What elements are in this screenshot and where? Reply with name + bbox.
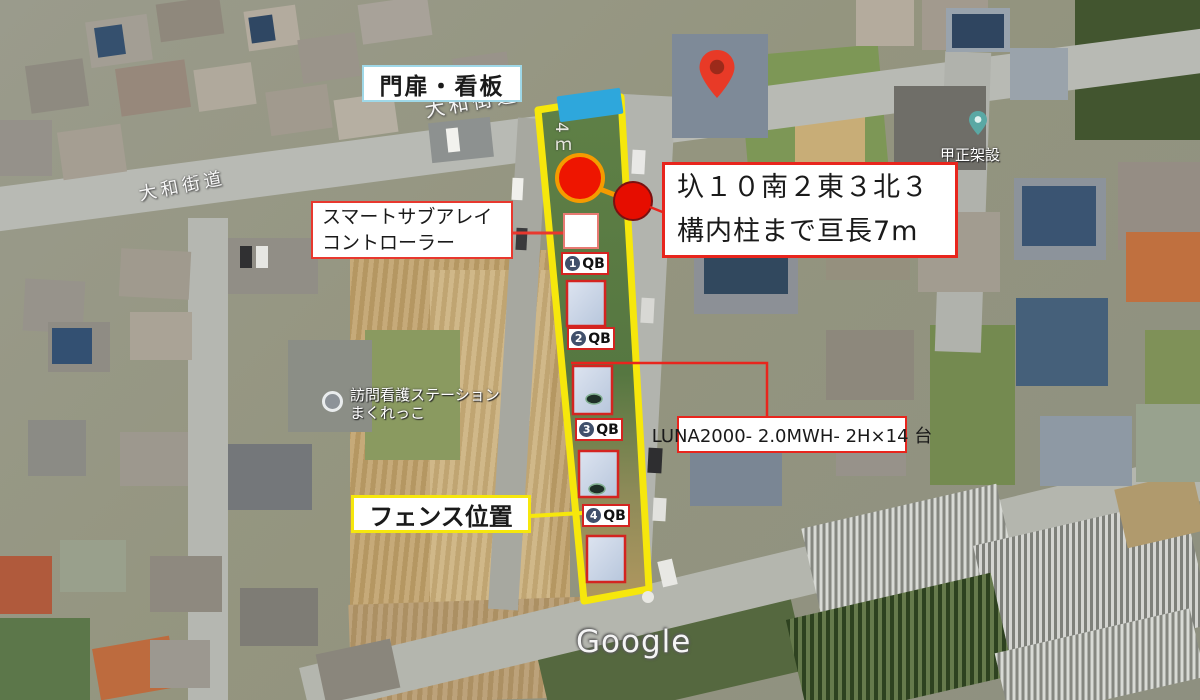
qb-number-icon: 2 [571, 331, 586, 346]
battery-spec-text: LUNA2000- 2.0MWH- 2H×14 台 [652, 422, 933, 448]
gate-width-text: 4ｍ [549, 122, 574, 158]
google-watermark: Google [576, 624, 691, 660]
qb-unit-chip-2: 2 QB [567, 327, 615, 350]
gate-sign-label-text: 門扉・看板 [380, 67, 505, 101]
qb-number-icon: 4 [586, 508, 601, 523]
pole-marker-circle-large [557, 155, 603, 201]
controller-label-line1: スマートサブアレイ [322, 204, 511, 230]
qb-chip-text: QB [603, 508, 626, 524]
gate-sign-label: 門扉・看板 [362, 65, 522, 102]
pole-note-line2: 構内柱まで亘長7m [677, 210, 955, 254]
battery-unit-box-4 [587, 536, 625, 582]
corner-marker-dot [642, 591, 654, 603]
battery-unit-box-2 [573, 366, 612, 414]
qb-chip-text: QB [596, 422, 619, 438]
qb-unit-chip-3: 3 QB [575, 418, 623, 441]
fence-position-label: フェンス位置 [351, 495, 531, 533]
qb-chip-text: QB [588, 331, 611, 347]
pole-note-label: 圦１０南２東３北３ 構内柱まで亘長7m [662, 162, 958, 258]
satellite-map: 大和街道 大和街道 訪問看護ステーション まくれっこ 甲正架設 [0, 0, 1200, 700]
site-object-marker-1 [586, 394, 602, 404]
controller-label: スマートサブアレイ コントローラー [311, 201, 513, 259]
qb-unit-chip-1: 1 QB [561, 252, 609, 275]
pole-note-line1: 圦１０南２東３北３ [677, 166, 955, 210]
pole-marker-circle-small [614, 182, 652, 220]
qb-number-icon: 1 [565, 256, 580, 271]
qb-unit-chip-4: 4 QB [582, 504, 630, 527]
battery-unit-box-1 [567, 281, 605, 326]
battery-spec-label: LUNA2000- 2.0MWH- 2H×14 台 [677, 416, 907, 453]
qb-number-icon: 3 [579, 422, 594, 437]
controller-label-line2: コントローラー [322, 230, 511, 256]
annotation-layer [0, 0, 1200, 700]
site-object-marker-2 [589, 484, 605, 494]
fence-position-text: フェンス位置 [369, 497, 513, 532]
controller-unit-box [564, 214, 598, 248]
qb-chip-text: QB [582, 256, 605, 272]
